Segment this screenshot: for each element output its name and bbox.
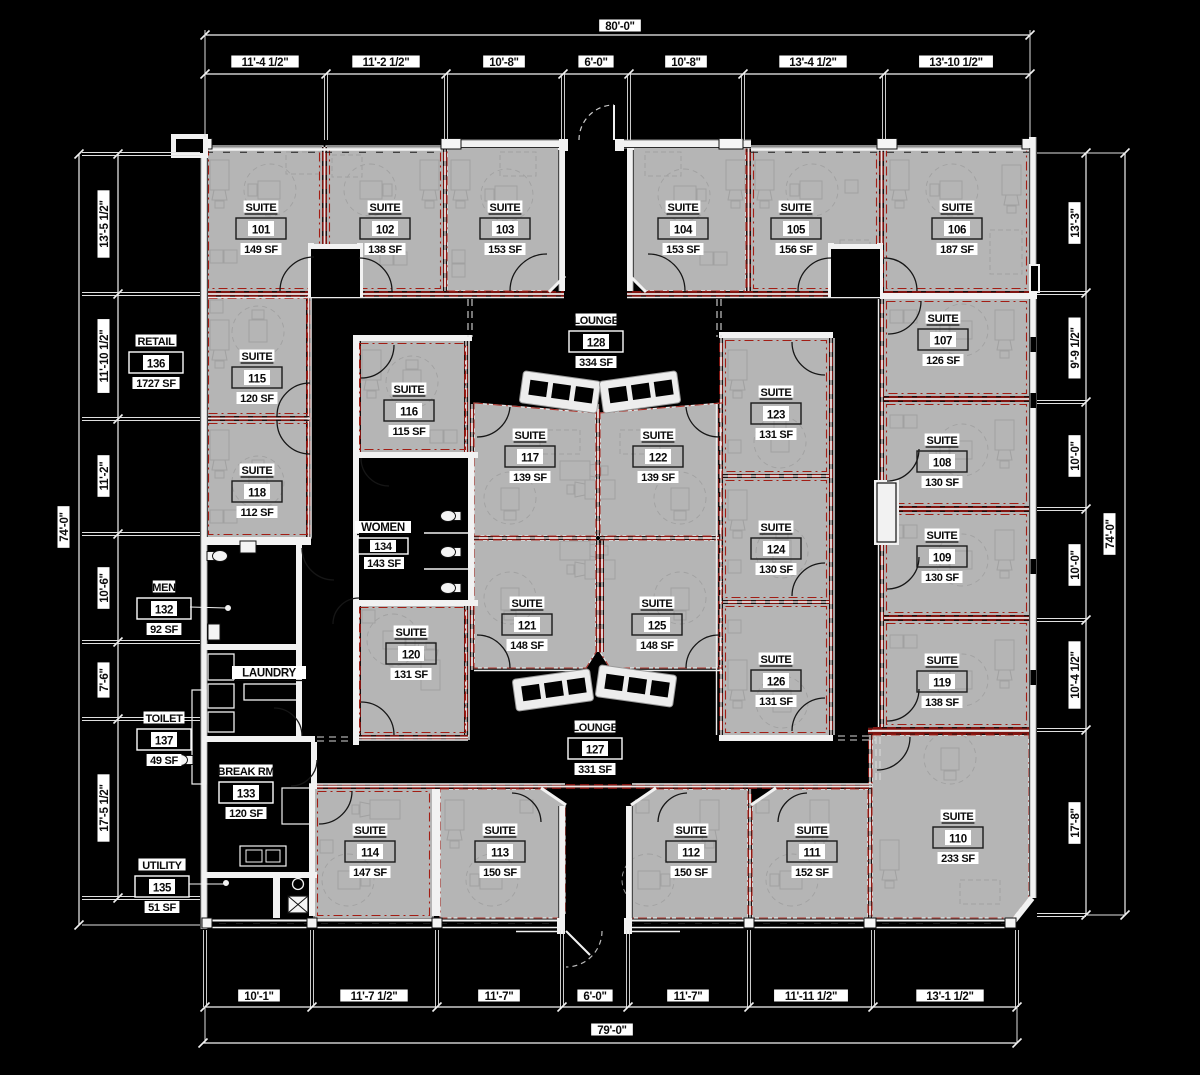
svg-text:13'-5 1/2": 13'-5 1/2" xyxy=(99,200,111,247)
svg-text:11'-11 1/2": 11'-11 1/2" xyxy=(785,991,837,1003)
svg-text:331 SF: 331 SF xyxy=(578,764,612,776)
svg-text:233 SF: 233 SF xyxy=(941,853,975,865)
svg-text:117: 117 xyxy=(521,453,539,465)
svg-text:79'-0": 79'-0" xyxy=(597,1025,626,1037)
svg-text:9'-9 1/2": 9'-9 1/2" xyxy=(1070,327,1082,368)
svg-text:SUITE: SUITE xyxy=(668,202,699,214)
svg-text:152 SF: 152 SF xyxy=(795,867,829,879)
svg-text:334 SF: 334 SF xyxy=(579,357,613,369)
svg-text:110: 110 xyxy=(949,834,967,846)
svg-text:SUITE: SUITE xyxy=(642,598,673,610)
svg-text:10'-6": 10'-6" xyxy=(99,573,111,602)
svg-text:118: 118 xyxy=(248,488,267,500)
svg-text:SUITE: SUITE xyxy=(761,522,792,534)
svg-text:139 SF: 139 SF xyxy=(513,472,547,484)
svg-text:LOUNGE: LOUNGE xyxy=(572,722,617,734)
svg-text:127: 127 xyxy=(586,745,604,757)
svg-text:13'-10 1/2": 13'-10 1/2" xyxy=(929,57,982,69)
svg-text:120 SF: 120 SF xyxy=(229,808,263,820)
svg-text:10'-0": 10'-0" xyxy=(1070,441,1082,470)
svg-text:126: 126 xyxy=(767,677,785,689)
svg-text:153 SF: 153 SF xyxy=(666,244,700,256)
svg-text:7'-6": 7'-6" xyxy=(99,668,111,691)
svg-text:11'-7 1/2": 11'-7 1/2" xyxy=(351,991,398,1003)
svg-text:139 SF: 139 SF xyxy=(641,472,675,484)
svg-text:137: 137 xyxy=(155,736,173,748)
svg-text:132: 132 xyxy=(155,605,173,617)
svg-text:115 SF: 115 SF xyxy=(392,426,426,438)
svg-text:13'-3": 13'-3" xyxy=(1070,208,1082,237)
svg-text:150 SF: 150 SF xyxy=(483,867,517,879)
svg-text:SUITE: SUITE xyxy=(370,202,401,214)
svg-text:135: 135 xyxy=(153,883,172,895)
svg-text:LAUNDRY: LAUNDRY xyxy=(242,668,296,680)
svg-text:122: 122 xyxy=(649,453,667,465)
svg-text:112: 112 xyxy=(682,848,700,860)
svg-text:SUITE: SUITE xyxy=(676,825,707,837)
svg-text:130 SF: 130 SF xyxy=(925,572,959,584)
svg-text:136: 136 xyxy=(147,359,165,371)
svg-text:156 SF: 156 SF xyxy=(779,244,813,256)
svg-text:6'-0": 6'-0" xyxy=(583,991,606,1003)
svg-text:13'-4 1/2": 13'-4 1/2" xyxy=(789,57,836,69)
svg-text:131 SF: 131 SF xyxy=(394,669,428,681)
svg-text:125: 125 xyxy=(648,621,667,633)
svg-text:SUITE: SUITE xyxy=(761,387,792,399)
svg-text:134: 134 xyxy=(374,541,393,553)
svg-text:126 SF: 126 SF xyxy=(926,355,960,367)
svg-text:SUITE: SUITE xyxy=(246,202,277,214)
svg-text:SUITE: SUITE xyxy=(512,598,543,610)
svg-text:MEN: MEN xyxy=(152,582,176,594)
svg-text:SUITE: SUITE xyxy=(396,627,427,639)
svg-text:123: 123 xyxy=(767,410,785,422)
svg-text:116: 116 xyxy=(400,407,418,419)
svg-text:105: 105 xyxy=(787,225,806,237)
svg-text:74'-0": 74'-0" xyxy=(59,512,71,541)
svg-text:RETAIL: RETAIL xyxy=(137,336,175,348)
svg-text:SUITE: SUITE xyxy=(490,202,521,214)
svg-text:UTILITY: UTILITY xyxy=(142,860,182,872)
svg-text:130 SF: 130 SF xyxy=(925,477,959,489)
svg-text:80'-0": 80'-0" xyxy=(605,21,634,33)
svg-text:49 SF: 49 SF xyxy=(150,755,178,767)
svg-text:108: 108 xyxy=(933,458,952,470)
svg-text:112 SF: 112 SF xyxy=(240,507,274,519)
svg-text:11'-10 1/2": 11'-10 1/2" xyxy=(99,330,111,383)
svg-text:113: 113 xyxy=(491,848,509,860)
svg-text:109: 109 xyxy=(933,553,951,565)
svg-text:10'-1": 10'-1" xyxy=(244,991,273,1003)
svg-text:17'-8": 17'-8" xyxy=(1070,808,1082,837)
svg-text:121: 121 xyxy=(518,621,537,633)
svg-text:10'-8": 10'-8" xyxy=(489,57,518,69)
svg-text:10'-4 1/2": 10'-4 1/2" xyxy=(1070,651,1082,698)
svg-text:11'-7": 11'-7" xyxy=(674,991,703,1003)
svg-text:150 SF: 150 SF xyxy=(674,867,708,879)
svg-text:10'-0": 10'-0" xyxy=(1070,550,1082,579)
svg-text:1727 SF: 1727 SF xyxy=(136,378,176,390)
svg-text:11'-2 1/2": 11'-2 1/2" xyxy=(363,57,410,69)
svg-text:187 SF: 187 SF xyxy=(940,244,974,256)
svg-text:128: 128 xyxy=(587,338,606,350)
svg-text:SUITE: SUITE xyxy=(515,430,546,442)
svg-text:148 SF: 148 SF xyxy=(640,640,674,652)
svg-text:102: 102 xyxy=(376,225,394,237)
svg-text:11'-2": 11'-2" xyxy=(99,462,111,491)
svg-text:SUITE: SUITE xyxy=(643,430,674,442)
svg-text:101: 101 xyxy=(252,225,271,237)
svg-text:SUITE: SUITE xyxy=(942,202,973,214)
svg-text:SUITE: SUITE xyxy=(761,654,792,666)
svg-text:120 SF: 120 SF xyxy=(240,393,274,405)
svg-text:124: 124 xyxy=(767,545,786,557)
svg-text:SUITE: SUITE xyxy=(927,530,958,542)
svg-text:138 SF: 138 SF xyxy=(925,697,959,709)
svg-text:11'-4 1/2": 11'-4 1/2" xyxy=(242,57,289,69)
svg-text:SUITE: SUITE xyxy=(927,435,958,447)
svg-text:10'-8": 10'-8" xyxy=(671,57,700,69)
svg-text:103: 103 xyxy=(496,225,514,237)
svg-text:119: 119 xyxy=(933,678,951,690)
svg-text:147 SF: 147 SF xyxy=(353,867,387,879)
svg-text:SUITE: SUITE xyxy=(927,655,958,667)
svg-text:LOUNGE: LOUNGE xyxy=(573,315,618,327)
svg-text:111: 111 xyxy=(803,848,821,860)
svg-text:131 SF: 131 SF xyxy=(759,429,793,441)
svg-text:153 SF: 153 SF xyxy=(488,244,522,256)
svg-text:149 SF: 149 SF xyxy=(244,244,278,256)
svg-text:SUITE: SUITE xyxy=(781,202,812,214)
svg-text:SUITE: SUITE xyxy=(928,313,959,325)
svg-text:13'-1 1/2": 13'-1 1/2" xyxy=(926,991,973,1003)
svg-text:138 SF: 138 SF xyxy=(368,244,402,256)
svg-text:SUITE: SUITE xyxy=(242,465,273,477)
svg-text:131 SF: 131 SF xyxy=(759,696,793,708)
svg-text:SUITE: SUITE xyxy=(943,811,974,823)
svg-text:130 SF: 130 SF xyxy=(759,564,793,576)
svg-text:BREAK RM: BREAK RM xyxy=(218,766,275,778)
svg-text:114: 114 xyxy=(361,848,380,860)
svg-text:106: 106 xyxy=(948,225,966,237)
svg-text:74'-0": 74'-0" xyxy=(1105,519,1117,548)
svg-text:104: 104 xyxy=(674,225,693,237)
svg-text:SUITE: SUITE xyxy=(485,825,516,837)
svg-text:92 SF: 92 SF xyxy=(150,624,178,636)
svg-text:115: 115 xyxy=(248,374,267,386)
svg-text:148 SF: 148 SF xyxy=(510,640,544,652)
svg-text:SUITE: SUITE xyxy=(797,825,828,837)
svg-text:107: 107 xyxy=(934,336,952,348)
svg-text:TOILET: TOILET xyxy=(145,713,183,725)
svg-text:SUITE: SUITE xyxy=(242,351,273,363)
svg-text:133: 133 xyxy=(237,789,255,801)
svg-text:17'-5 1/2": 17'-5 1/2" xyxy=(99,784,111,831)
svg-text:51 SF: 51 SF xyxy=(148,902,176,914)
svg-text:SUITE: SUITE xyxy=(394,384,425,396)
svg-text:120: 120 xyxy=(402,650,420,662)
svg-text:6'-0": 6'-0" xyxy=(584,57,607,69)
svg-text:143 SF: 143 SF xyxy=(367,558,401,570)
svg-text:SUITE: SUITE xyxy=(355,825,386,837)
svg-text:WOMEN: WOMEN xyxy=(361,522,405,534)
svg-text:11'-7": 11'-7" xyxy=(485,991,514,1003)
